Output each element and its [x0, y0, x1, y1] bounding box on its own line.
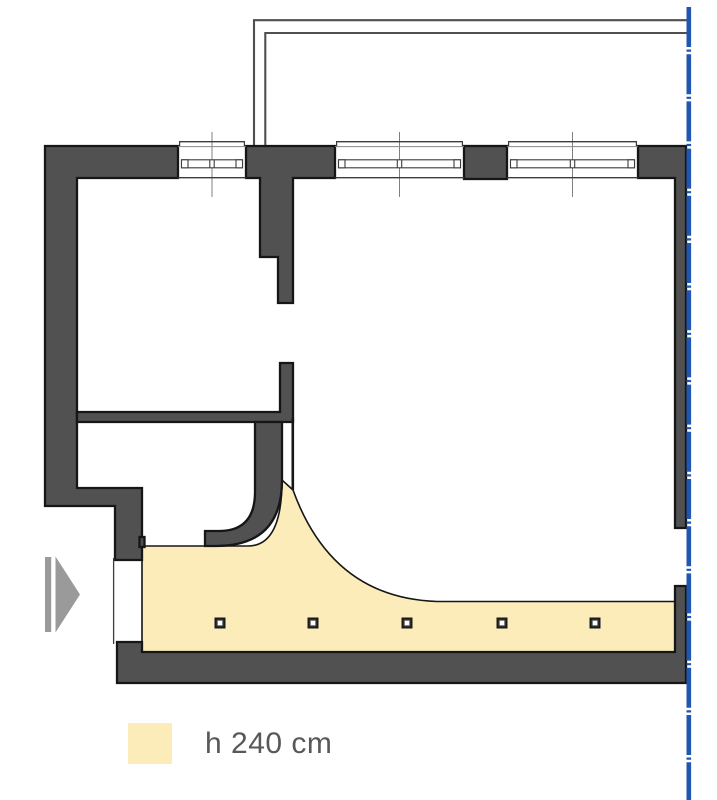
spotlight-icon: [402, 618, 413, 629]
wall-left-and-entry: [45, 146, 178, 560]
window-symbol: [178, 132, 246, 197]
balcony-outline: [253, 20, 689, 148]
legend-color-swatch: [128, 723, 172, 764]
spotlight-icon: [215, 618, 226, 629]
window-symbol: [335, 132, 464, 197]
floor-plan-figure: h 240 cm: [0, 0, 717, 800]
floor-plan-drawing: [0, 0, 717, 800]
wall-top-right-corner: [638, 146, 686, 528]
wall-top-pier-1: [246, 146, 335, 303]
wall-top-pier-2: [464, 146, 507, 179]
wall-door-side-pier: [140, 537, 145, 547]
window-symbol: [507, 132, 638, 197]
door-jamb-line: [292, 418, 295, 490]
wall-curved-partition: [205, 422, 282, 546]
entrance-arrow-icon: [45, 557, 80, 633]
spotlight-icon: [590, 618, 601, 629]
legend-label: h 240 cm: [205, 727, 332, 761]
legend: h 240 cm: [128, 723, 332, 764]
spotlight-icon: [497, 618, 508, 629]
spotlight-icon: [308, 618, 319, 629]
wall-interior-divider: [77, 363, 293, 422]
